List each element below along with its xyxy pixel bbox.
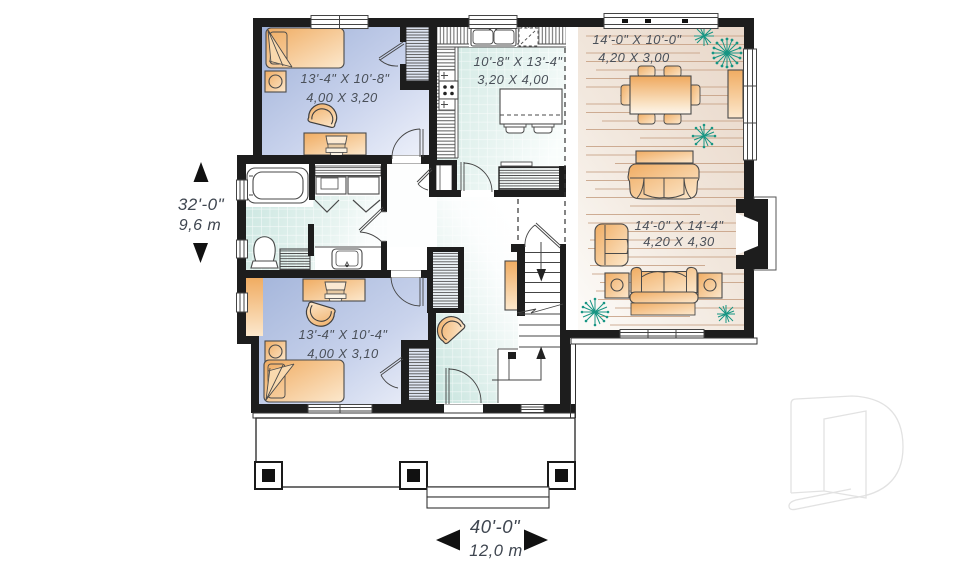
svg-text:12,0 m: 12,0 m xyxy=(469,542,522,560)
svg-text:14'-0" X 10'-0": 14'-0" X 10'-0" xyxy=(593,32,683,47)
svg-text:13'-4" X 10'-4": 13'-4" X 10'-4" xyxy=(299,327,389,342)
svg-text:13'-4" X 10'-8": 13'-4" X 10'-8" xyxy=(301,71,391,86)
svg-text:4,20 X 3,00: 4,20 X 3,00 xyxy=(598,50,670,65)
svg-text:10'-8" X 13'-4": 10'-8" X 13'-4" xyxy=(474,54,564,69)
svg-text:14'-0" X 14'-4": 14'-0" X 14'-4" xyxy=(635,218,725,233)
svg-text:4,00 X 3,20: 4,00 X 3,20 xyxy=(306,90,378,105)
svg-text:4,00 X 3,10: 4,00 X 3,10 xyxy=(307,346,379,361)
svg-text:32'-0": 32'-0" xyxy=(178,195,225,214)
svg-text:40'-0": 40'-0" xyxy=(470,516,521,537)
svg-text:3,20 X 4,00: 3,20 X 4,00 xyxy=(477,72,549,87)
svg-text:9,6 m: 9,6 m xyxy=(179,217,222,234)
svg-text:4,20 X 4,30: 4,20 X 4,30 xyxy=(643,234,715,249)
